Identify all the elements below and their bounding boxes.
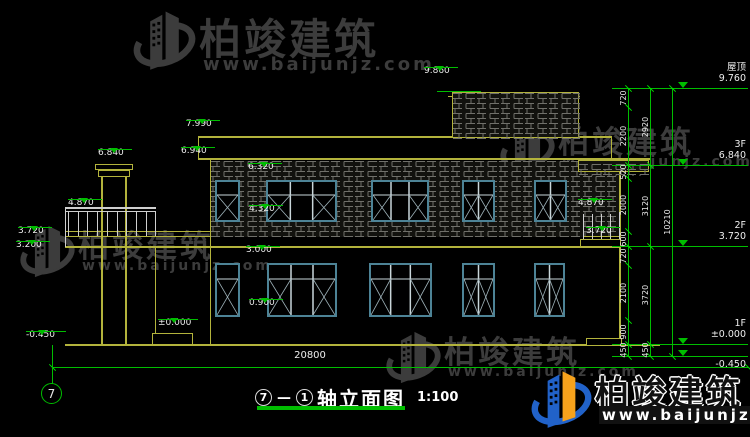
level-triangle-icon	[261, 204, 269, 209]
window-2f-1	[215, 180, 240, 222]
window-2f-4	[462, 180, 495, 222]
window-1f-5	[534, 263, 565, 317]
level-triangle-icon	[598, 226, 606, 231]
floor-elevation: 3.720	[719, 231, 746, 242]
level-triangle-icon	[170, 318, 178, 323]
title-axis-start-bubble: 7	[255, 389, 272, 406]
level-triangle-icon	[590, 198, 598, 203]
level-triangle-icon	[28, 240, 36, 245]
dim-chain-line-3	[672, 88, 673, 356]
brand-building-icon	[133, 6, 196, 76]
porch-rail-post	[126, 212, 127, 236]
porch-rail-post	[136, 212, 137, 236]
porch-back-wall	[155, 247, 156, 344]
roof-right-edge	[611, 136, 612, 160]
level-triangle-icon	[260, 162, 268, 167]
title-axis-end-bubble: 1	[296, 389, 313, 406]
porch-rail-post	[117, 212, 118, 236]
floor-level-triangle-icon	[678, 159, 688, 165]
level-triangle-icon	[258, 245, 266, 250]
brand-url-text: www.baijunjz.com	[599, 406, 750, 424]
floor-name: 3F	[734, 139, 746, 150]
level-triangle-icon	[436, 66, 444, 71]
level-triangle-icon	[30, 226, 38, 231]
floor-elevation: 6.840	[719, 150, 746, 161]
dim-chain-line-2	[650, 88, 651, 356]
dim-value-10210: 10210	[664, 198, 672, 246]
porch-rail-post	[155, 212, 156, 236]
window-2f-3	[371, 180, 429, 222]
dim-chain-line-1	[628, 88, 629, 356]
floor-level-line-9.760	[612, 88, 748, 89]
overall-width-dimension: 20800	[160, 351, 460, 361]
floor-level-triangle-icon	[678, 338, 688, 344]
level-triangle-icon	[193, 146, 201, 151]
level-triangle-icon	[80, 198, 88, 203]
porch-rail-post	[107, 212, 108, 236]
floor-elevation: ±0.000	[711, 329, 746, 340]
axis-bubble-7: 7	[41, 383, 62, 404]
dim-value-2920: 2920	[642, 103, 650, 151]
floor-name: 2F	[734, 220, 746, 231]
chimney-left-edge	[101, 176, 103, 344]
window-1f-4	[462, 263, 495, 317]
axis-7-extension-line	[52, 345, 53, 384]
title-underline	[257, 406, 405, 410]
brand-url-text: www.baijunjz.com	[82, 258, 273, 274]
floor-band-bottom	[65, 246, 620, 248]
title-axis-separator: —	[277, 390, 291, 406]
axis-bubble-label: 7	[48, 387, 56, 401]
brand-building-icon	[531, 366, 592, 434]
window-1f-1	[215, 263, 240, 317]
level-triangle-icon	[38, 330, 46, 335]
floor-level-triangle-icon	[678, 240, 688, 246]
floor-level-line-±0.000	[612, 344, 748, 345]
porch-left-post	[65, 207, 66, 247]
window-1f-2	[267, 263, 337, 317]
floor-name: 1F	[734, 318, 746, 329]
balcony-rail-post	[583, 214, 584, 239]
floor-level-label-6.840: 3F6.840	[690, 139, 746, 161]
floor-level-line--0.450	[612, 356, 748, 357]
porch-rail-post	[97, 212, 98, 236]
floor-elevation: 9.760	[719, 73, 746, 84]
floor-level-triangle-icon	[678, 350, 688, 356]
elevation-drawing-canvas: 20800 7 7 — 1 轴立面图 1:100 柏竣建筑www.baijunj…	[0, 0, 750, 437]
porch-rail-post	[87, 212, 88, 236]
window-2f-2	[266, 180, 337, 222]
floor-level-label-±0.000: 1F±0.000	[690, 318, 746, 340]
level-line	[26, 331, 66, 332]
penthouse-level-line	[437, 91, 481, 92]
level-triangle-icon	[110, 148, 118, 153]
porch-rail-post	[78, 212, 79, 236]
window-2f-5	[534, 180, 567, 222]
chimney-right-edge	[125, 176, 127, 344]
floor-level-line-3.720	[612, 246, 748, 247]
penthouse-brick-wall	[452, 92, 579, 138]
floor-level-triangle-icon	[678, 82, 688, 88]
dim-value-3120: 3120	[642, 182, 650, 230]
window-1f-3	[369, 263, 432, 317]
dim-value-3720: 3720	[642, 271, 650, 319]
floor-level-label-3.720: 2F3.720	[690, 220, 746, 242]
level-triangle-icon	[198, 119, 206, 124]
title-scale: 1:100	[417, 390, 458, 405]
chimney-cap-lower	[98, 170, 130, 177]
entry-steps	[152, 333, 193, 345]
level-triangle-icon	[261, 298, 269, 303]
level-line	[158, 319, 198, 320]
right-fascia-band	[578, 160, 649, 172]
porch-rail-post	[68, 212, 69, 236]
brand-url-text: www.baijunjz.com	[203, 54, 435, 75]
floor-level-line-6.840	[612, 165, 748, 166]
floor-level-label-9.760: 屋顶9.760	[690, 62, 746, 84]
floor-name: 屋顶	[727, 62, 746, 73]
porch-rail-post	[146, 212, 147, 236]
